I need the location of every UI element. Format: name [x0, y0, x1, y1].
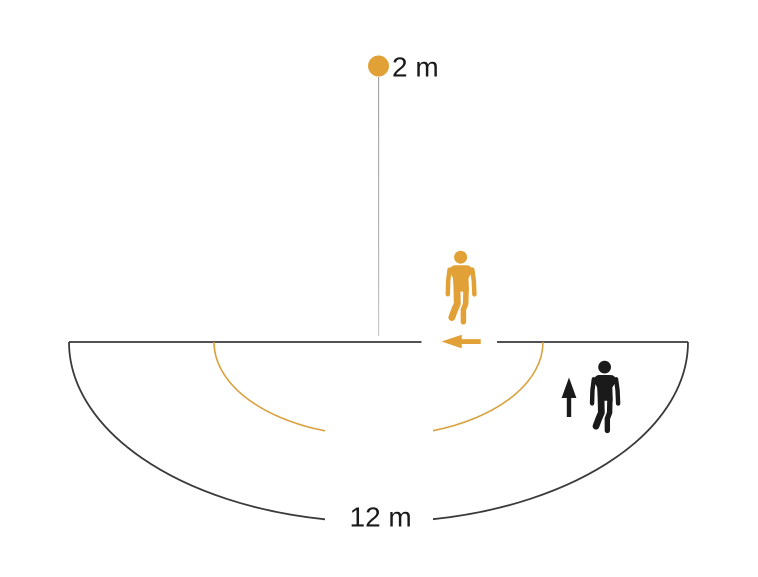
svg-text:2 m: 2 m — [392, 52, 439, 83]
svg-text:12 m: 12 m — [350, 502, 412, 533]
